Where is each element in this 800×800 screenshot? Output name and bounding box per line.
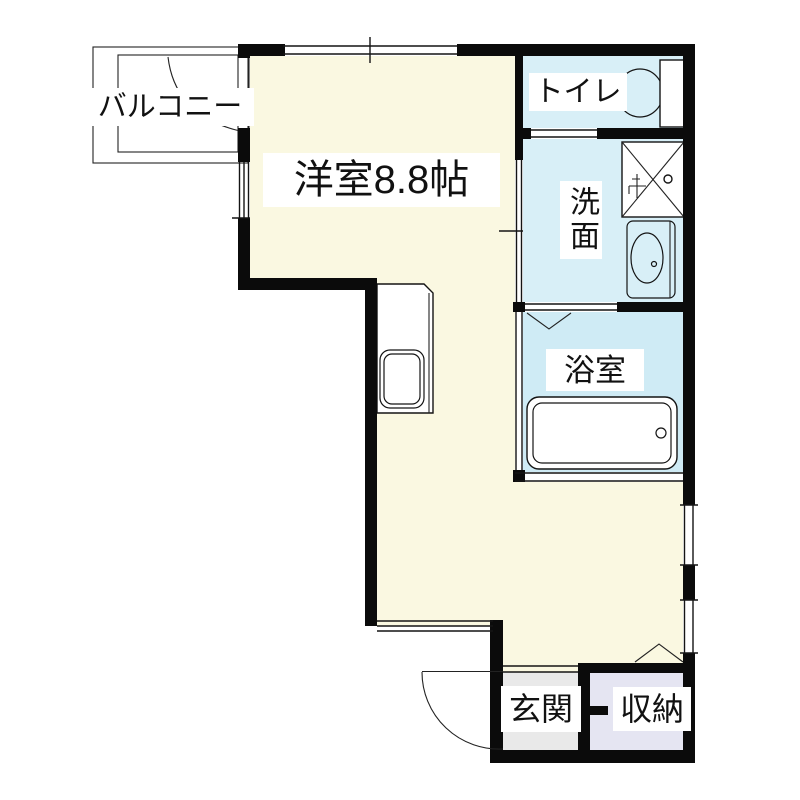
window-left [232,162,250,218]
label-bathroom: 浴室 [546,349,644,391]
label-washroom: 洗面 [560,181,602,259]
toilet-door-opening [531,130,597,137]
bathroom-side-wall [516,312,522,470]
label-storage: 収納 [613,687,691,731]
bathtub [527,397,677,469]
label-western-room: 洋室8.8帖 [263,153,500,207]
label-balcony: バルコニー [86,88,254,126]
label-toilet: トイレ [529,73,627,111]
floor-plan-canvas: 洋室8.8帖 バルコニー トイレ 洗面 浴室 玄関 収納 [0,0,800,800]
washing-machine-pan [622,142,684,217]
kitchen-counter-sink [377,284,433,413]
bathroom-bottom-wall [515,473,683,481]
toilet-tank [660,60,684,127]
label-entrance: 玄関 [501,686,581,732]
